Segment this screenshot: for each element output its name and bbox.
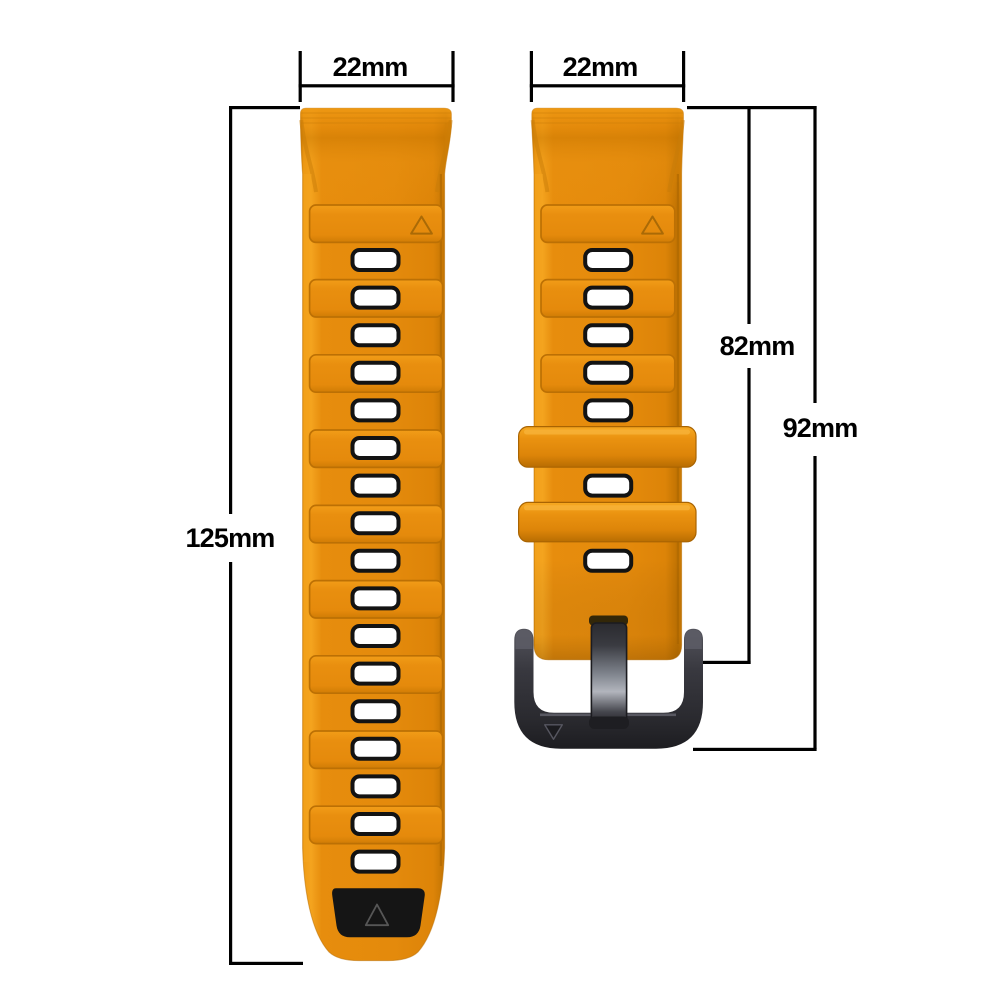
svg-text:82mm: 82mm xyxy=(720,331,795,361)
svg-text:92mm: 92mm xyxy=(783,413,858,443)
svg-text:22mm: 22mm xyxy=(563,52,638,82)
svg-text:22mm: 22mm xyxy=(333,52,408,82)
svg-text:125mm: 125mm xyxy=(185,523,274,553)
